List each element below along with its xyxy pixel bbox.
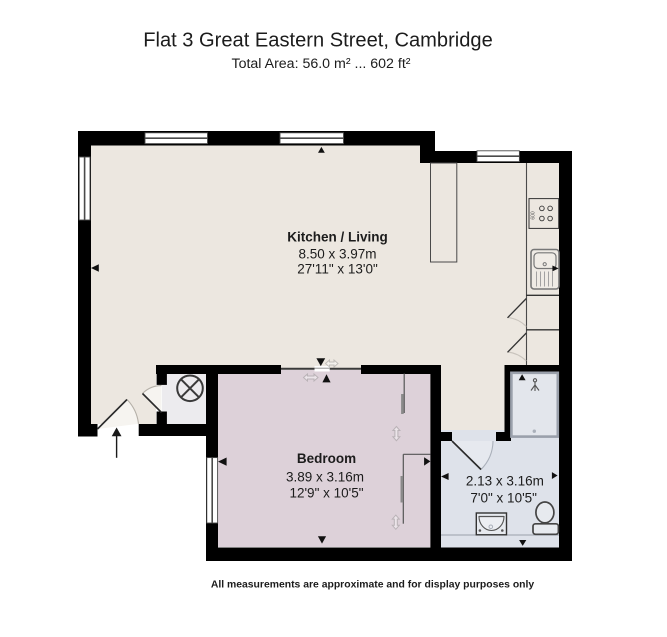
svg-text:27'11" x 13'0": 27'11" x 13'0" xyxy=(297,262,378,277)
svg-text:Flat 3 Great Eastern Street, C: Flat 3 Great Eastern Street, Cambridge xyxy=(143,30,493,52)
svg-text:12'9" x 10'5": 12'9" x 10'5" xyxy=(289,486,363,501)
svg-text:Kitchen / Living: Kitchen / Living xyxy=(287,230,388,245)
svg-text:8.50 x 3.97m: 8.50 x 3.97m xyxy=(298,247,376,262)
svg-text:600: 600 xyxy=(531,211,537,220)
svg-text:2.13 x 3.16m: 2.13 x 3.16m xyxy=(466,474,544,489)
svg-text:All measurements are approxima: All measurements are approximate and for… xyxy=(211,580,535,591)
svg-text:Bedroom: Bedroom xyxy=(297,451,356,466)
svg-text:3.89 x 3.16m: 3.89 x 3.16m xyxy=(286,470,364,485)
svg-text:Total Area: 56.0 m² ... 602 ft: Total Area: 56.0 m² ... 602 ft² xyxy=(231,56,410,72)
svg-text:7'0" x 10'5": 7'0" x 10'5" xyxy=(470,491,537,506)
